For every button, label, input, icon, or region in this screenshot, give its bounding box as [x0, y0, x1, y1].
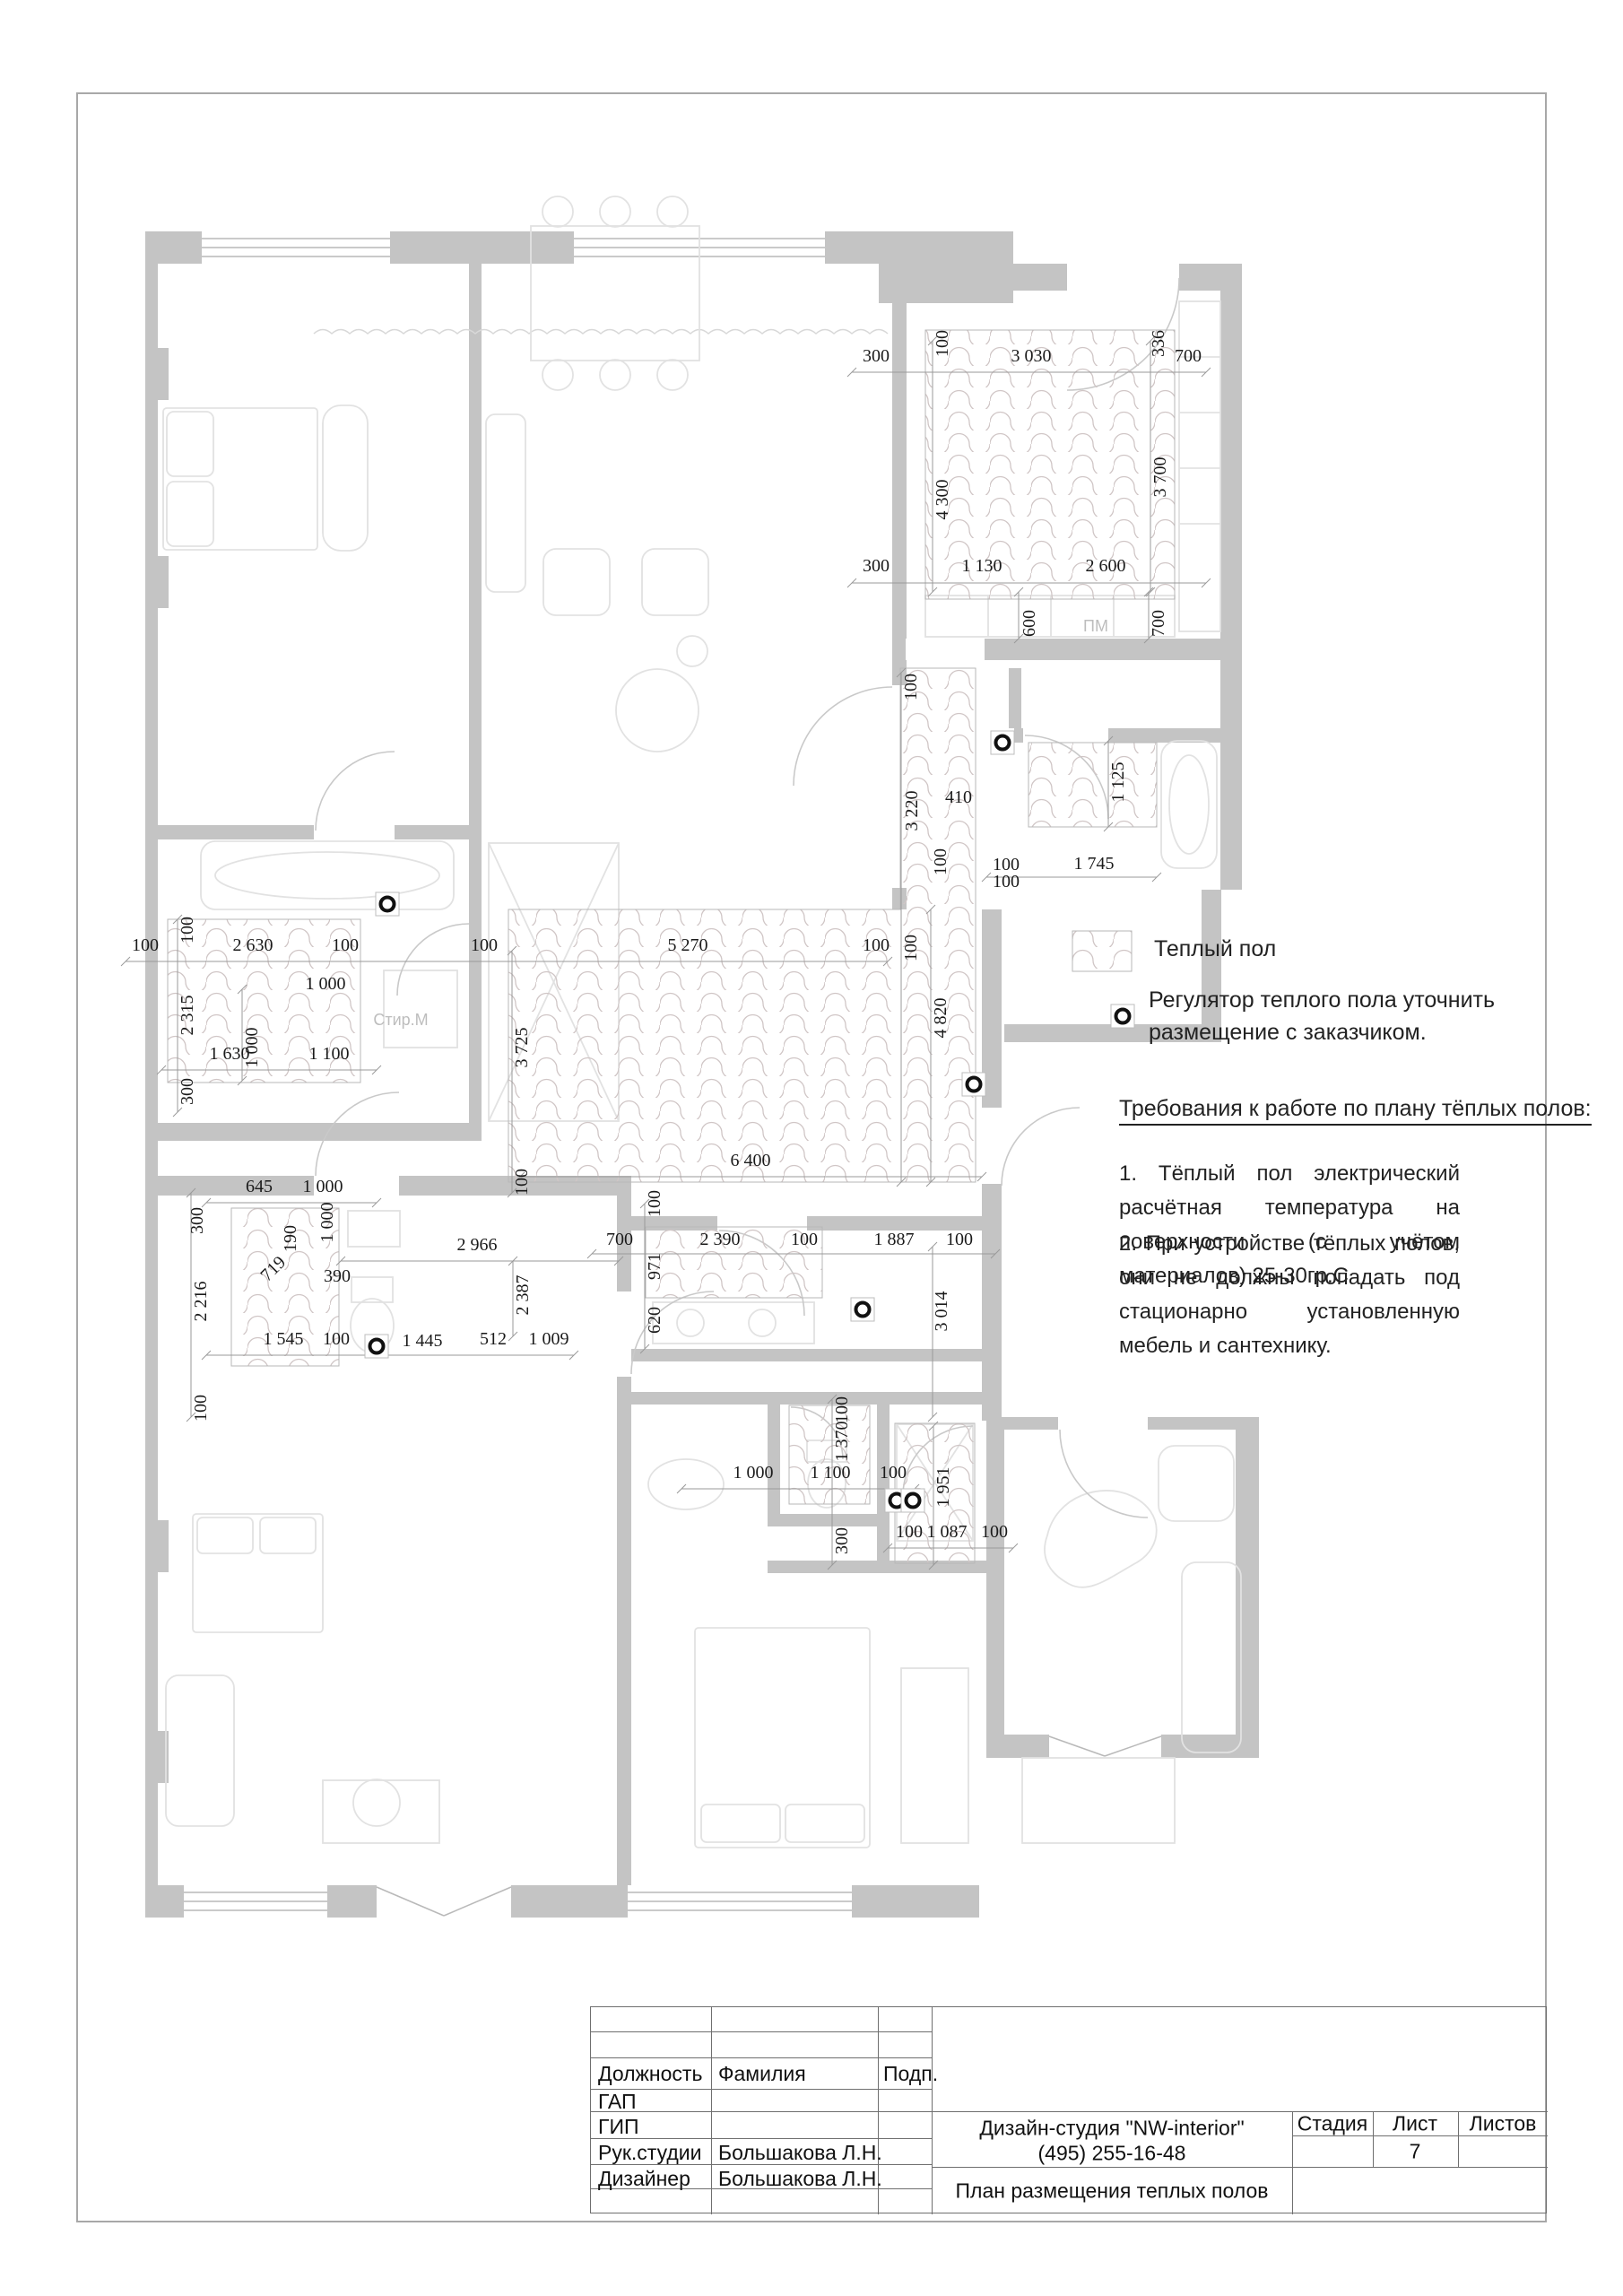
dimension-label: 2 390	[700, 1230, 741, 1249]
tb-col-position: Должность	[598, 2062, 702, 2086]
dimension-label: 100	[933, 330, 952, 357]
dimension-label: 336	[1149, 330, 1168, 357]
tb-sheets-label: Листов	[1470, 2112, 1537, 2136]
dimension-label: 3 220	[902, 791, 922, 831]
dimension-label: 1 100	[811, 1463, 851, 1483]
dimension-label: 100	[993, 872, 1020, 891]
dimension-label: 2 630	[233, 935, 273, 955]
tb-row-designer-name: Большакова Л.Н.	[718, 2167, 882, 2191]
dimension-label: 700	[1175, 346, 1202, 366]
regulator-ring	[381, 898, 395, 911]
tb-studio: Дизайн-студия "NW-interior"	[979, 2117, 1244, 2141]
dimension-label: 620	[645, 1307, 664, 1334]
dimension-label: 1 100	[309, 1044, 350, 1064]
dimension-label: 1 745	[1074, 854, 1115, 874]
dimension-label: 100	[191, 1395, 211, 1422]
dimension-label: 100	[512, 1169, 532, 1196]
dimension-label: 1 000	[306, 974, 346, 994]
dimension-label: 1 545	[264, 1329, 304, 1349]
legend-regulator-line1: Регулятор теплого пола уточнить	[1149, 987, 1495, 1013]
dimension-label: 2 387	[513, 1275, 533, 1316]
dimension-label: 1 951	[933, 1467, 953, 1508]
dimension-label: 2 315	[178, 996, 197, 1036]
regulator-ring	[996, 736, 1010, 750]
dimension-label: 3 700	[1150, 457, 1170, 498]
dimension-label: 2 216	[191, 1282, 211, 1322]
regulator-icon	[962, 1073, 985, 1096]
dimension-label: 5 270	[668, 935, 708, 955]
legend-warm-floor-label: Теплый пол	[1154, 936, 1276, 962]
dimension-label: 100	[645, 1190, 664, 1217]
legend-warm-floor-swatch	[1072, 931, 1132, 971]
dimension-label: 190	[281, 1225, 300, 1252]
dimension-label: 1 000	[303, 1177, 343, 1196]
dimension-label: 2 966	[457, 1235, 498, 1255]
dimension-label: 100	[896, 1522, 923, 1542]
dimension-label: 4 820	[931, 998, 950, 1039]
dimension-label: 100	[901, 674, 921, 700]
dimension-label: 1 370	[832, 1422, 852, 1462]
dimension-label: 300	[178, 1078, 197, 1105]
dimension-line	[336, 1257, 623, 1265]
dimension-label: 100	[993, 855, 1020, 874]
tb-phone: (495) 255-16-48	[1038, 2142, 1186, 2166]
dimension-label: 100	[832, 1396, 852, 1423]
dimension-label: 600	[1020, 610, 1039, 637]
regulator-ring	[370, 1340, 384, 1353]
dimension-label: 300	[832, 1527, 852, 1554]
dimension-label: 100	[901, 935, 921, 961]
dimension-label: 100	[178, 917, 197, 944]
tb-row-designer: Дизайнер	[598, 2167, 690, 2191]
dimension-label: 100	[931, 848, 950, 875]
regulator-icon	[376, 892, 399, 916]
legend-regulator-line2: размещение с заказчиком.	[1149, 1020, 1427, 1046]
heated-floor-zone	[1028, 743, 1157, 827]
dimension-line	[202, 1198, 381, 1207]
dimension-label: 1 630	[210, 1044, 250, 1064]
regulator-icon	[851, 1298, 874, 1321]
dimension-label: 3 030	[1011, 346, 1052, 366]
regulator-icon	[901, 1489, 924, 1512]
dimension-label: 512	[480, 1329, 507, 1349]
regulator-ring	[1116, 1010, 1130, 1023]
regulator-ring	[856, 1303, 870, 1317]
tb-row-gip: ГИП	[598, 2115, 639, 2139]
tb-sheet-number: 7	[1410, 2140, 1421, 2164]
tb-row-head-name: Большакова Л.Н.	[718, 2141, 882, 2165]
dimension-label: 700	[1149, 610, 1168, 637]
dimension-label: 4 300	[933, 480, 952, 520]
room-label: ПМ	[1083, 617, 1108, 635]
dimension-label: 2 600	[1086, 556, 1126, 576]
dimension-label: 6 400	[731, 1151, 771, 1170]
dimension-label: 300	[187, 1207, 207, 1234]
dimension-label: 3 725	[512, 1028, 532, 1068]
dimension-label: 300	[863, 346, 890, 366]
dimension-label: 1 130	[962, 556, 1002, 576]
dimension-label: 100	[323, 1329, 350, 1349]
curtain-line	[314, 330, 888, 335]
dimension-label: 390	[324, 1266, 351, 1286]
title-block: Должность Фамилия Подп. ГАП ГИП Рук.студ…	[590, 2006, 1547, 2213]
dimension-label: 100	[880, 1463, 907, 1483]
dimension-label: 100	[132, 935, 159, 955]
regulator-icon	[991, 731, 1014, 754]
tb-row-head: Рук.студии	[598, 2141, 701, 2165]
regulator-ring	[907, 1494, 920, 1508]
tb-drawing-title: План размещения теплых полов	[956, 2179, 1269, 2204]
dimension-label: 100	[471, 935, 498, 955]
dimension-label: 100	[332, 935, 359, 955]
dimension-label: 100	[863, 935, 890, 955]
dimension-label: 1 009	[529, 1329, 569, 1349]
tb-row-gap: ГАП	[598, 2090, 637, 2114]
dimension-label: 1 000	[733, 1463, 774, 1483]
floor-plan: 3001003 0303367004 3003 7003001 1302 600…	[0, 0, 1623, 2296]
dimension-label: 971	[645, 1253, 664, 1280]
dimension-label: 1 087	[927, 1522, 968, 1542]
dimension-label: 1 000	[317, 1203, 337, 1243]
dimension-label: 3 014	[932, 1291, 951, 1332]
legend-regulator-icon	[1111, 1004, 1134, 1028]
drawing-sheet: 3001003 0303367004 3003 7003001 1302 600…	[0, 0, 1623, 2296]
heated-floor-zone	[508, 668, 976, 1182]
tb-col-sign: Подп.	[883, 2062, 938, 2086]
notes-item-2: 2. При устройстве тёплых полов, они не д…	[1119, 1227, 1460, 1363]
dimension-label: 100	[981, 1522, 1008, 1542]
dimension-label: 645	[246, 1177, 273, 1196]
room-label: Стир.М	[373, 1011, 428, 1029]
dimension-label: 300	[863, 556, 890, 576]
dimension-label: 100	[946, 1230, 973, 1249]
dimension-label: 1 125	[1108, 762, 1128, 803]
dimension-label: 410	[945, 787, 972, 807]
tb-col-name: Фамилия	[718, 2062, 806, 2086]
dimension-label: 100	[791, 1230, 818, 1249]
regulator-ring	[968, 1078, 981, 1091]
dimension-label: 1 887	[874, 1230, 915, 1249]
tb-sheet-label: Лист	[1393, 2112, 1437, 2136]
notes-heading: Требования к работе по плану тёплых поло…	[1119, 1096, 1592, 1122]
dimension-label: 1 445	[403, 1331, 443, 1351]
tb-stage-label: Стадия	[1298, 2112, 1367, 2136]
regulator-icon	[365, 1335, 388, 1358]
dimension-label: 700	[606, 1230, 633, 1249]
